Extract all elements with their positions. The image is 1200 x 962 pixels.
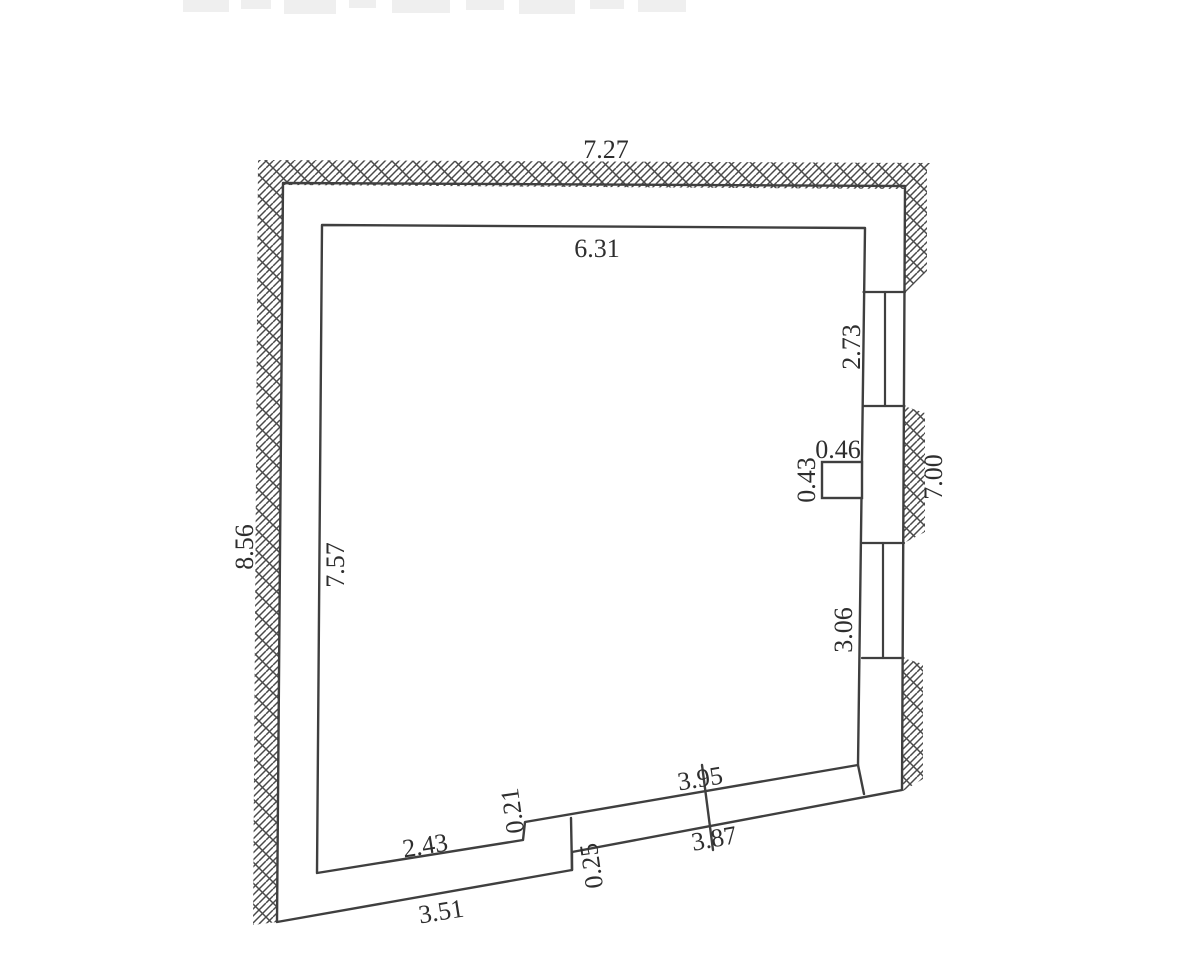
dim-bottom-outer-left: 3.51 (416, 894, 465, 930)
hatch-right-upper (905, 168, 927, 293)
dim-pier-depth: 0.43 (792, 457, 821, 503)
dim-step-up: 0.21 (495, 786, 530, 835)
corner-chamfer-line (858, 765, 864, 794)
window-lower (862, 543, 904, 658)
wall-pier (822, 462, 862, 498)
dim-bottom-inner-right: 3.95 (675, 761, 724, 797)
scan-artifact (183, 0, 686, 14)
dim-bottom-inner-left: 2.43 (400, 828, 449, 864)
dim-window-upper: 2.73 (837, 324, 866, 370)
dim-left-inner: 7.57 (321, 542, 350, 588)
dim-bottom-outer-right: 3.87 (689, 820, 739, 856)
dim-right-outer: 7.00 (919, 454, 948, 500)
floorplan-canvas: 7.27 6.31 8.56 7.57 2.73 0.46 0.43 7.00 … (0, 0, 1200, 962)
dim-pier-width: 0.46 (815, 435, 861, 464)
inner-room-outline (317, 225, 865, 873)
dim-top-inner: 6.31 (574, 234, 620, 263)
dim-left-outer: 8.56 (230, 524, 259, 570)
dim-window-lower: 3.06 (829, 607, 858, 653)
hatch-right-lower (903, 658, 923, 791)
window-upper (863, 292, 905, 406)
dimension-tick-step (571, 818, 572, 870)
scanned-floorplan-page: 7.27 6.31 8.56 7.57 2.73 0.46 0.43 7.00 … (0, 0, 1200, 962)
dim-step-down: 0.25 (574, 841, 609, 890)
dim-top-outer: 7.27 (583, 135, 629, 164)
